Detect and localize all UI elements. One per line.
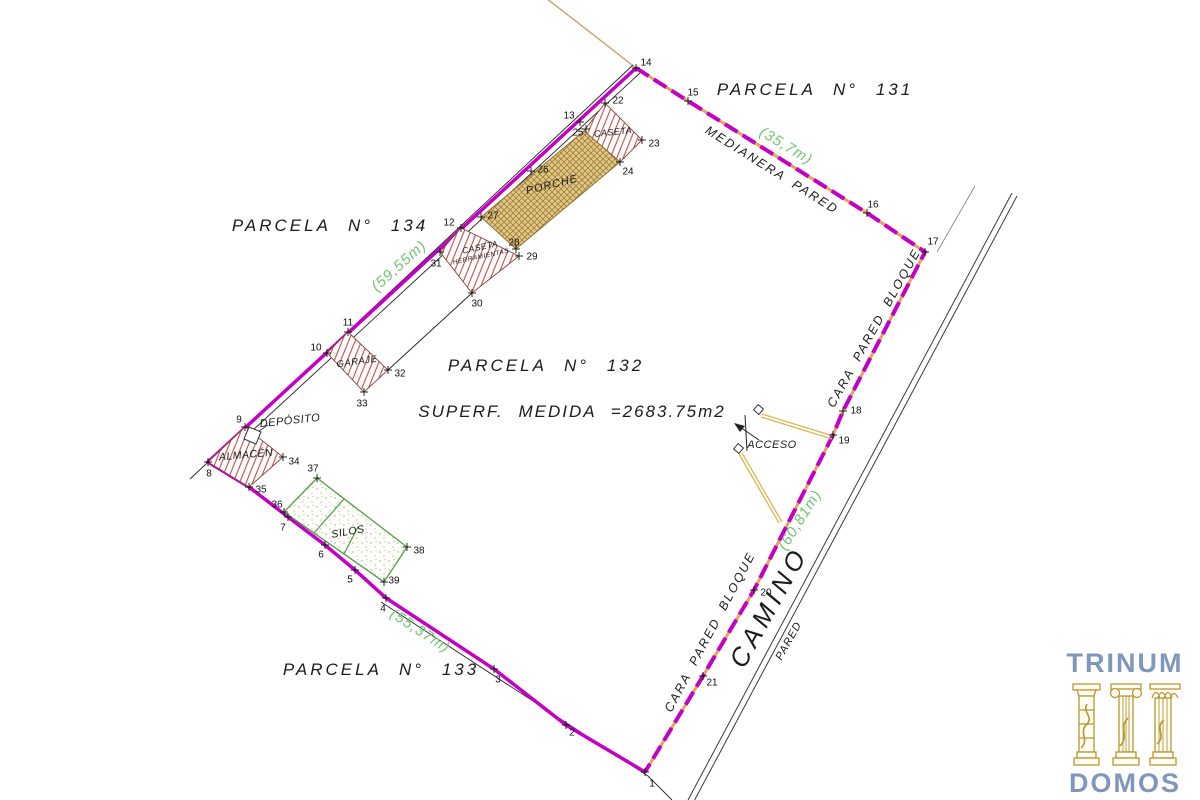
site-plan-drawing: 1234567891011121314151617181920212223242… (0, 0, 1200, 800)
svg-text:29: 29 (526, 252, 538, 263)
svg-text:16: 16 (867, 200, 879, 211)
svg-text:10: 10 (310, 343, 322, 354)
boundary-point-30: 30 (468, 289, 483, 310)
boundary-point-11: 11 (343, 318, 354, 337)
svg-text:3: 3 (495, 675, 501, 686)
svg-text:38: 38 (413, 546, 425, 557)
logo-trinum-text: TRINUM (1060, 648, 1190, 679)
svg-text:34: 34 (288, 457, 300, 468)
svg-text:8: 8 (206, 469, 212, 480)
svg-text:11: 11 (343, 318, 354, 329)
svg-text:24: 24 (622, 167, 634, 178)
parcel-133-label: PARCELA N° 133 (283, 660, 479, 680)
camino-road-lines (688, 193, 1017, 800)
svg-text:18: 18 (850, 406, 862, 417)
svg-text:36: 36 (271, 500, 283, 511)
boundary-point-38: 38 (403, 543, 425, 557)
svg-text:12: 12 (443, 218, 455, 229)
svg-text:4: 4 (380, 604, 386, 615)
logo-columns-icon (1070, 682, 1182, 770)
svg-text:28: 28 (508, 238, 520, 249)
cadastral-plan-canvas: 1234567891011121314151617181920212223242… (0, 0, 1200, 800)
svg-text:9: 9 (236, 415, 242, 426)
svg-text:35: 35 (255, 485, 267, 496)
svg-text:14: 14 (640, 58, 652, 69)
svg-text:6: 6 (318, 550, 324, 561)
svg-text:25: 25 (572, 128, 584, 139)
tan-line-top (546, 0, 636, 68)
svg-text:21: 21 (706, 678, 718, 689)
acceso-label: ACCESO (747, 439, 796, 451)
wall-line-ne (937, 186, 975, 252)
svg-text:19: 19 (838, 436, 850, 447)
surface-area-label: SUPERF. MEDIDA =2683.75m2 (418, 402, 725, 422)
svg-text:32: 32 (394, 369, 406, 380)
svg-text:31: 31 (430, 259, 442, 270)
boundary-point-34: 34 (279, 453, 300, 468)
parcel-132-label: PARCELA N° 132 (448, 356, 644, 376)
boundary-point-28: 28 (508, 238, 520, 254)
svg-text:7: 7 (280, 523, 286, 534)
parcel-131-label: PARCELA N° 131 (717, 80, 913, 100)
svg-text:39: 39 (388, 576, 400, 587)
svg-text:33: 33 (356, 399, 368, 410)
svg-text:15: 15 (687, 88, 699, 99)
svg-text:27: 27 (487, 211, 499, 222)
boundary-point-23: 23 (638, 136, 660, 150)
boundary-point-32: 32 (384, 366, 406, 380)
svg-text:23: 23 (648, 139, 660, 150)
logo-domos-text: DOMOS (1060, 768, 1190, 799)
svg-text:22: 22 (612, 96, 624, 107)
parcel-134-label: PARCELA N° 134 (232, 216, 428, 236)
svg-text:13: 13 (563, 111, 575, 122)
boundary-point-33: 33 (356, 388, 368, 410)
svg-text:17: 17 (927, 237, 939, 248)
svg-text:2: 2 (569, 728, 575, 739)
svg-text:30: 30 (471, 299, 483, 310)
svg-text:5: 5 (347, 575, 353, 586)
svg-text:1: 1 (649, 779, 655, 790)
svg-text:37: 37 (307, 464, 319, 475)
svg-text:26: 26 (537, 165, 549, 176)
